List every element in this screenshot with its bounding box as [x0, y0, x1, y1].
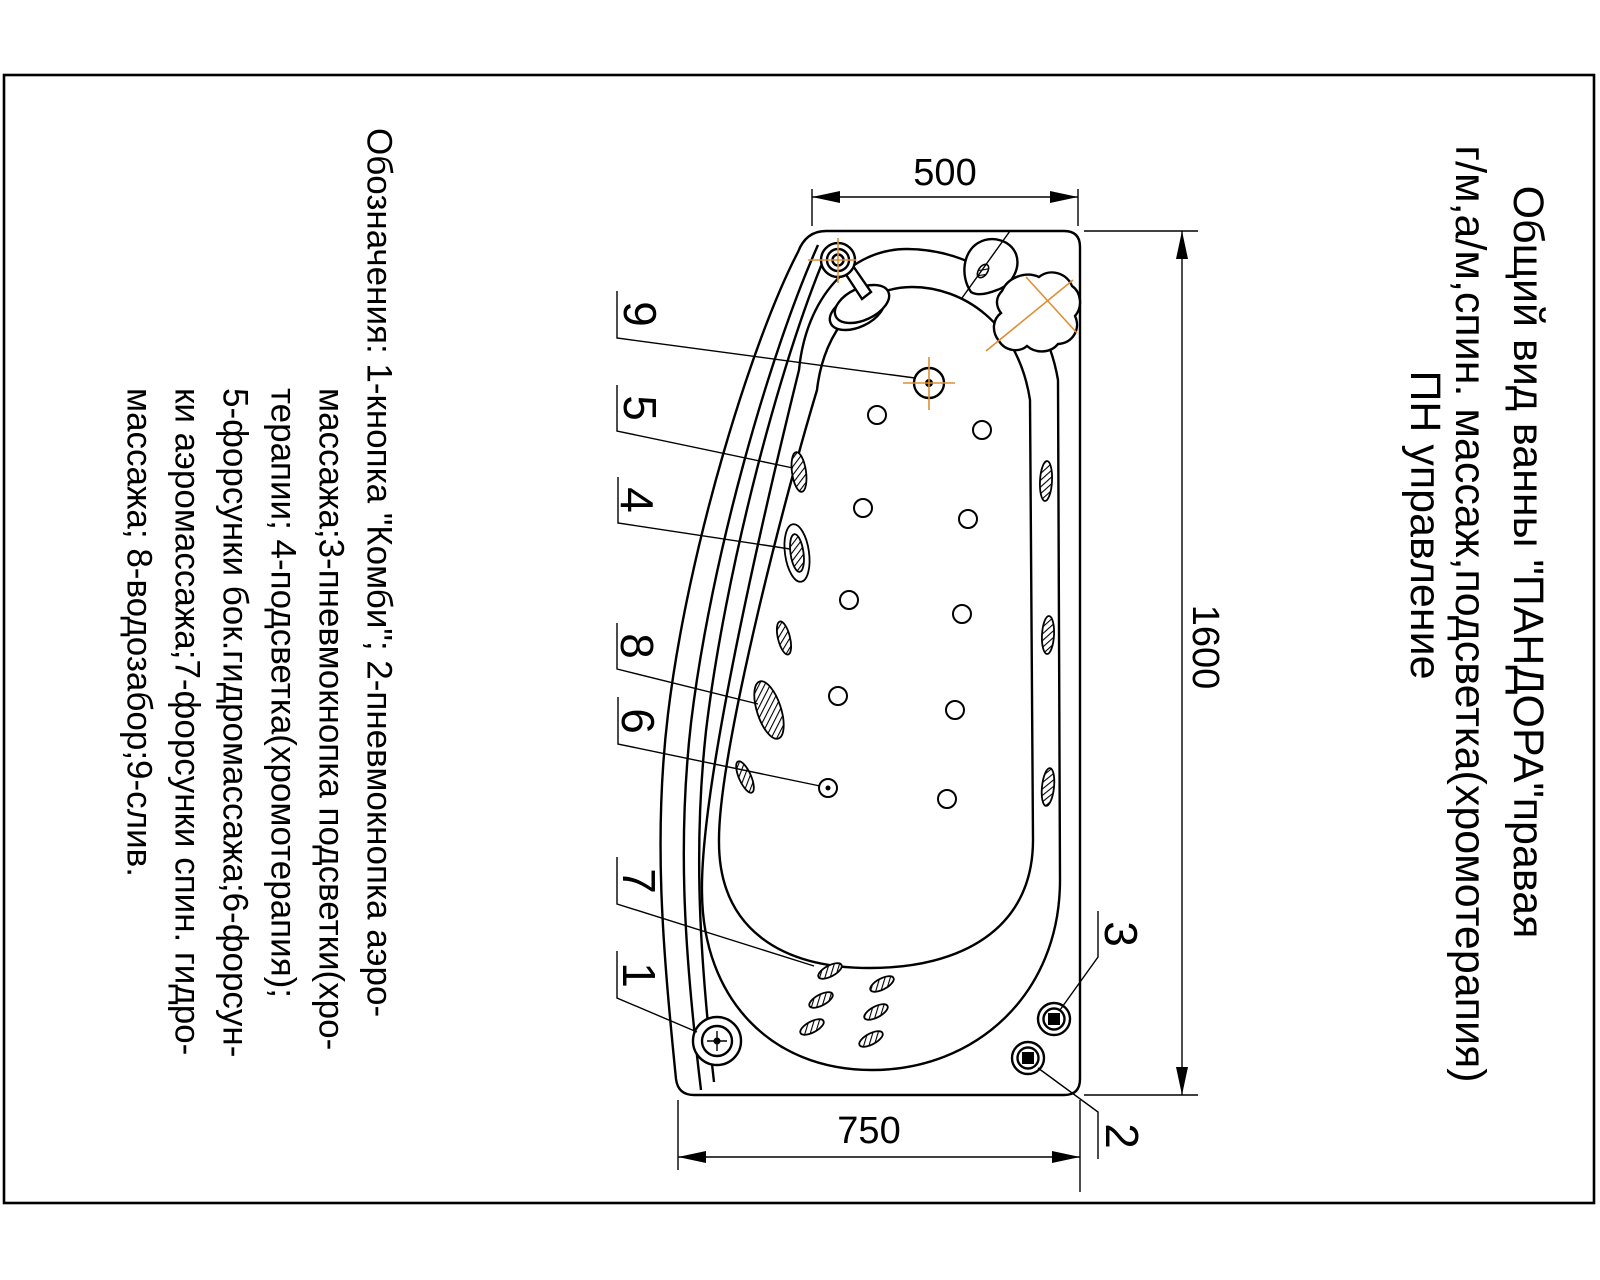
dim750-value: 750: [837, 1110, 900, 1152]
callout-9-label: 9: [614, 301, 666, 327]
callout-8-label: 8: [611, 633, 663, 659]
aero-jet: [953, 605, 971, 623]
dim1600-value: 1600: [1184, 605, 1226, 690]
aero-jet: [938, 790, 956, 808]
title-line-3: ПН управление: [1401, 370, 1449, 679]
legend-line-6: массажа; 8-водозабор;9-слив.: [120, 388, 159, 877]
legend-line-1: Обозначения: 1-кнопка "Комби"; 2-пневмок…: [360, 128, 399, 1017]
callout-3-label: 3: [1095, 921, 1147, 947]
aero-jet: [854, 499, 872, 517]
drawing-canvas: Общий вид ванны "ПАНДОРА"правая г/м,а/м,…: [0, 0, 1600, 1280]
light-pneumo-button-center: [1048, 1013, 1060, 1025]
legend-line-4: 5-форсунки бок.гидромассажа;6-форсун-: [216, 388, 255, 1057]
callout-5-label: 5: [614, 395, 666, 421]
aero-jet: [959, 510, 977, 528]
title-line-2: г/м,а/м,спин. массаж,подсветка(хромотера…: [1446, 145, 1494, 1082]
callout-2-label: 2: [1096, 1123, 1148, 1149]
drawing-page: Общий вид ванны "ПАНДОРА"правая г/м,а/м,…: [0, 0, 1600, 1280]
callout-4-label: 4: [611, 487, 663, 513]
callout-7-label: 7: [613, 868, 665, 894]
callout-6-label: 6: [612, 708, 664, 734]
title-line-1: Общий вид ванны "ПАНДОРА"правая: [1504, 186, 1552, 939]
aero-pneumo-button-center: [1022, 1052, 1034, 1064]
legend-line-3: терапии; 4-подсветка(хромотерапия);: [264, 388, 303, 998]
callout-1-label: 1: [613, 962, 665, 988]
aero-jet-center: [826, 786, 831, 791]
aero-jet: [973, 421, 991, 439]
dim500-value: 500: [913, 152, 976, 194]
aero-jet: [868, 406, 886, 424]
legend-line-2: массажа;3-пневмокнопка подсветки(хро-: [312, 388, 351, 1050]
aero-jet: [946, 701, 964, 719]
aero-jet: [840, 591, 858, 609]
legend-line-5: ки аэромассажа;7-форсунки спин. гидро-: [168, 388, 207, 1055]
aero-jet: [829, 687, 847, 705]
